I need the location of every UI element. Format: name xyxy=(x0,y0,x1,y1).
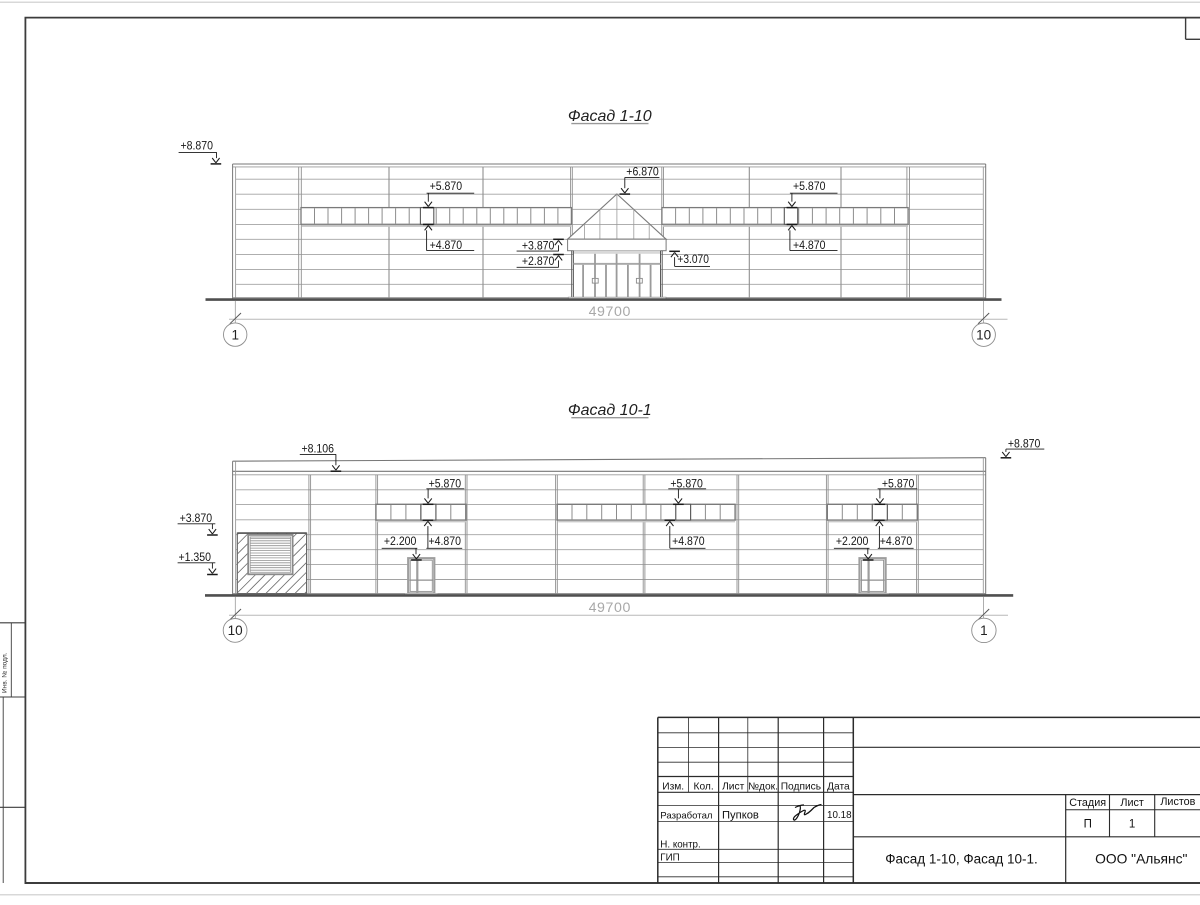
svg-text:ООО "Альянс": ООО "Альянс" xyxy=(1095,851,1187,866)
svg-text:1: 1 xyxy=(980,623,988,638)
svg-text:+8.870: +8.870 xyxy=(1008,438,1041,450)
svg-text:ГИП: ГИП xyxy=(660,853,679,864)
svg-text:49700: 49700 xyxy=(589,304,631,320)
svg-text:+2.200: +2.200 xyxy=(384,536,417,548)
svg-text:+4.870: +4.870 xyxy=(793,240,826,252)
svg-text:Дата: Дата xyxy=(827,782,850,793)
svg-text:Фасад 10-1: Фасад 10-1 xyxy=(568,402,652,419)
svg-text:10: 10 xyxy=(976,327,991,342)
svg-text:Лист: Лист xyxy=(1120,797,1144,809)
svg-text:Лист: Лист xyxy=(722,782,744,793)
svg-text:Листов: Листов xyxy=(1160,796,1195,808)
svg-text:+2.870: +2.870 xyxy=(522,256,555,268)
svg-text:Фасад 1-10: Фасад 1-10 xyxy=(568,108,652,125)
svg-text:+2.200: +2.200 xyxy=(836,536,869,548)
svg-text:Н. контр.: Н. контр. xyxy=(660,839,700,850)
svg-text:1: 1 xyxy=(231,327,239,342)
svg-text:№док.: №док. xyxy=(748,782,778,793)
svg-text:Кол.: Кол. xyxy=(694,782,714,793)
svg-text:10.18: 10.18 xyxy=(827,810,852,821)
svg-text:10: 10 xyxy=(228,623,243,638)
svg-text:Подпись: Подпись xyxy=(781,782,821,793)
svg-text:+5.870: +5.870 xyxy=(430,181,463,193)
svg-text:+4.870: +4.870 xyxy=(430,240,463,252)
svg-text:+3.070: +3.070 xyxy=(677,254,709,266)
svg-text:49700: 49700 xyxy=(589,600,631,616)
svg-text:Инв. № подл.: Инв. № подл. xyxy=(2,652,9,693)
svg-text:Стадия: Стадия xyxy=(1069,797,1106,809)
svg-text:+5.870: +5.870 xyxy=(793,181,826,193)
svg-text:+8.870: +8.870 xyxy=(181,141,214,153)
svg-text:Фасад 1-10, Фасад 10-1.: Фасад 1-10, Фасад 10-1. xyxy=(885,851,1038,866)
svg-text:Разработал: Разработал xyxy=(660,811,712,822)
svg-text:+8.106: +8.106 xyxy=(302,444,335,456)
svg-text:+6.870: +6.870 xyxy=(626,166,659,178)
svg-text:+4.870: +4.870 xyxy=(429,536,462,548)
svg-text:+4.870: +4.870 xyxy=(880,536,913,548)
svg-text:Изм.: Изм. xyxy=(662,782,684,793)
svg-text:П: П xyxy=(1084,818,1092,830)
svg-text:Пупков: Пупков xyxy=(722,809,759,821)
svg-text:+4.870: +4.870 xyxy=(672,536,705,548)
svg-text:1: 1 xyxy=(1129,818,1135,830)
svg-text:+3.870: +3.870 xyxy=(522,240,555,252)
